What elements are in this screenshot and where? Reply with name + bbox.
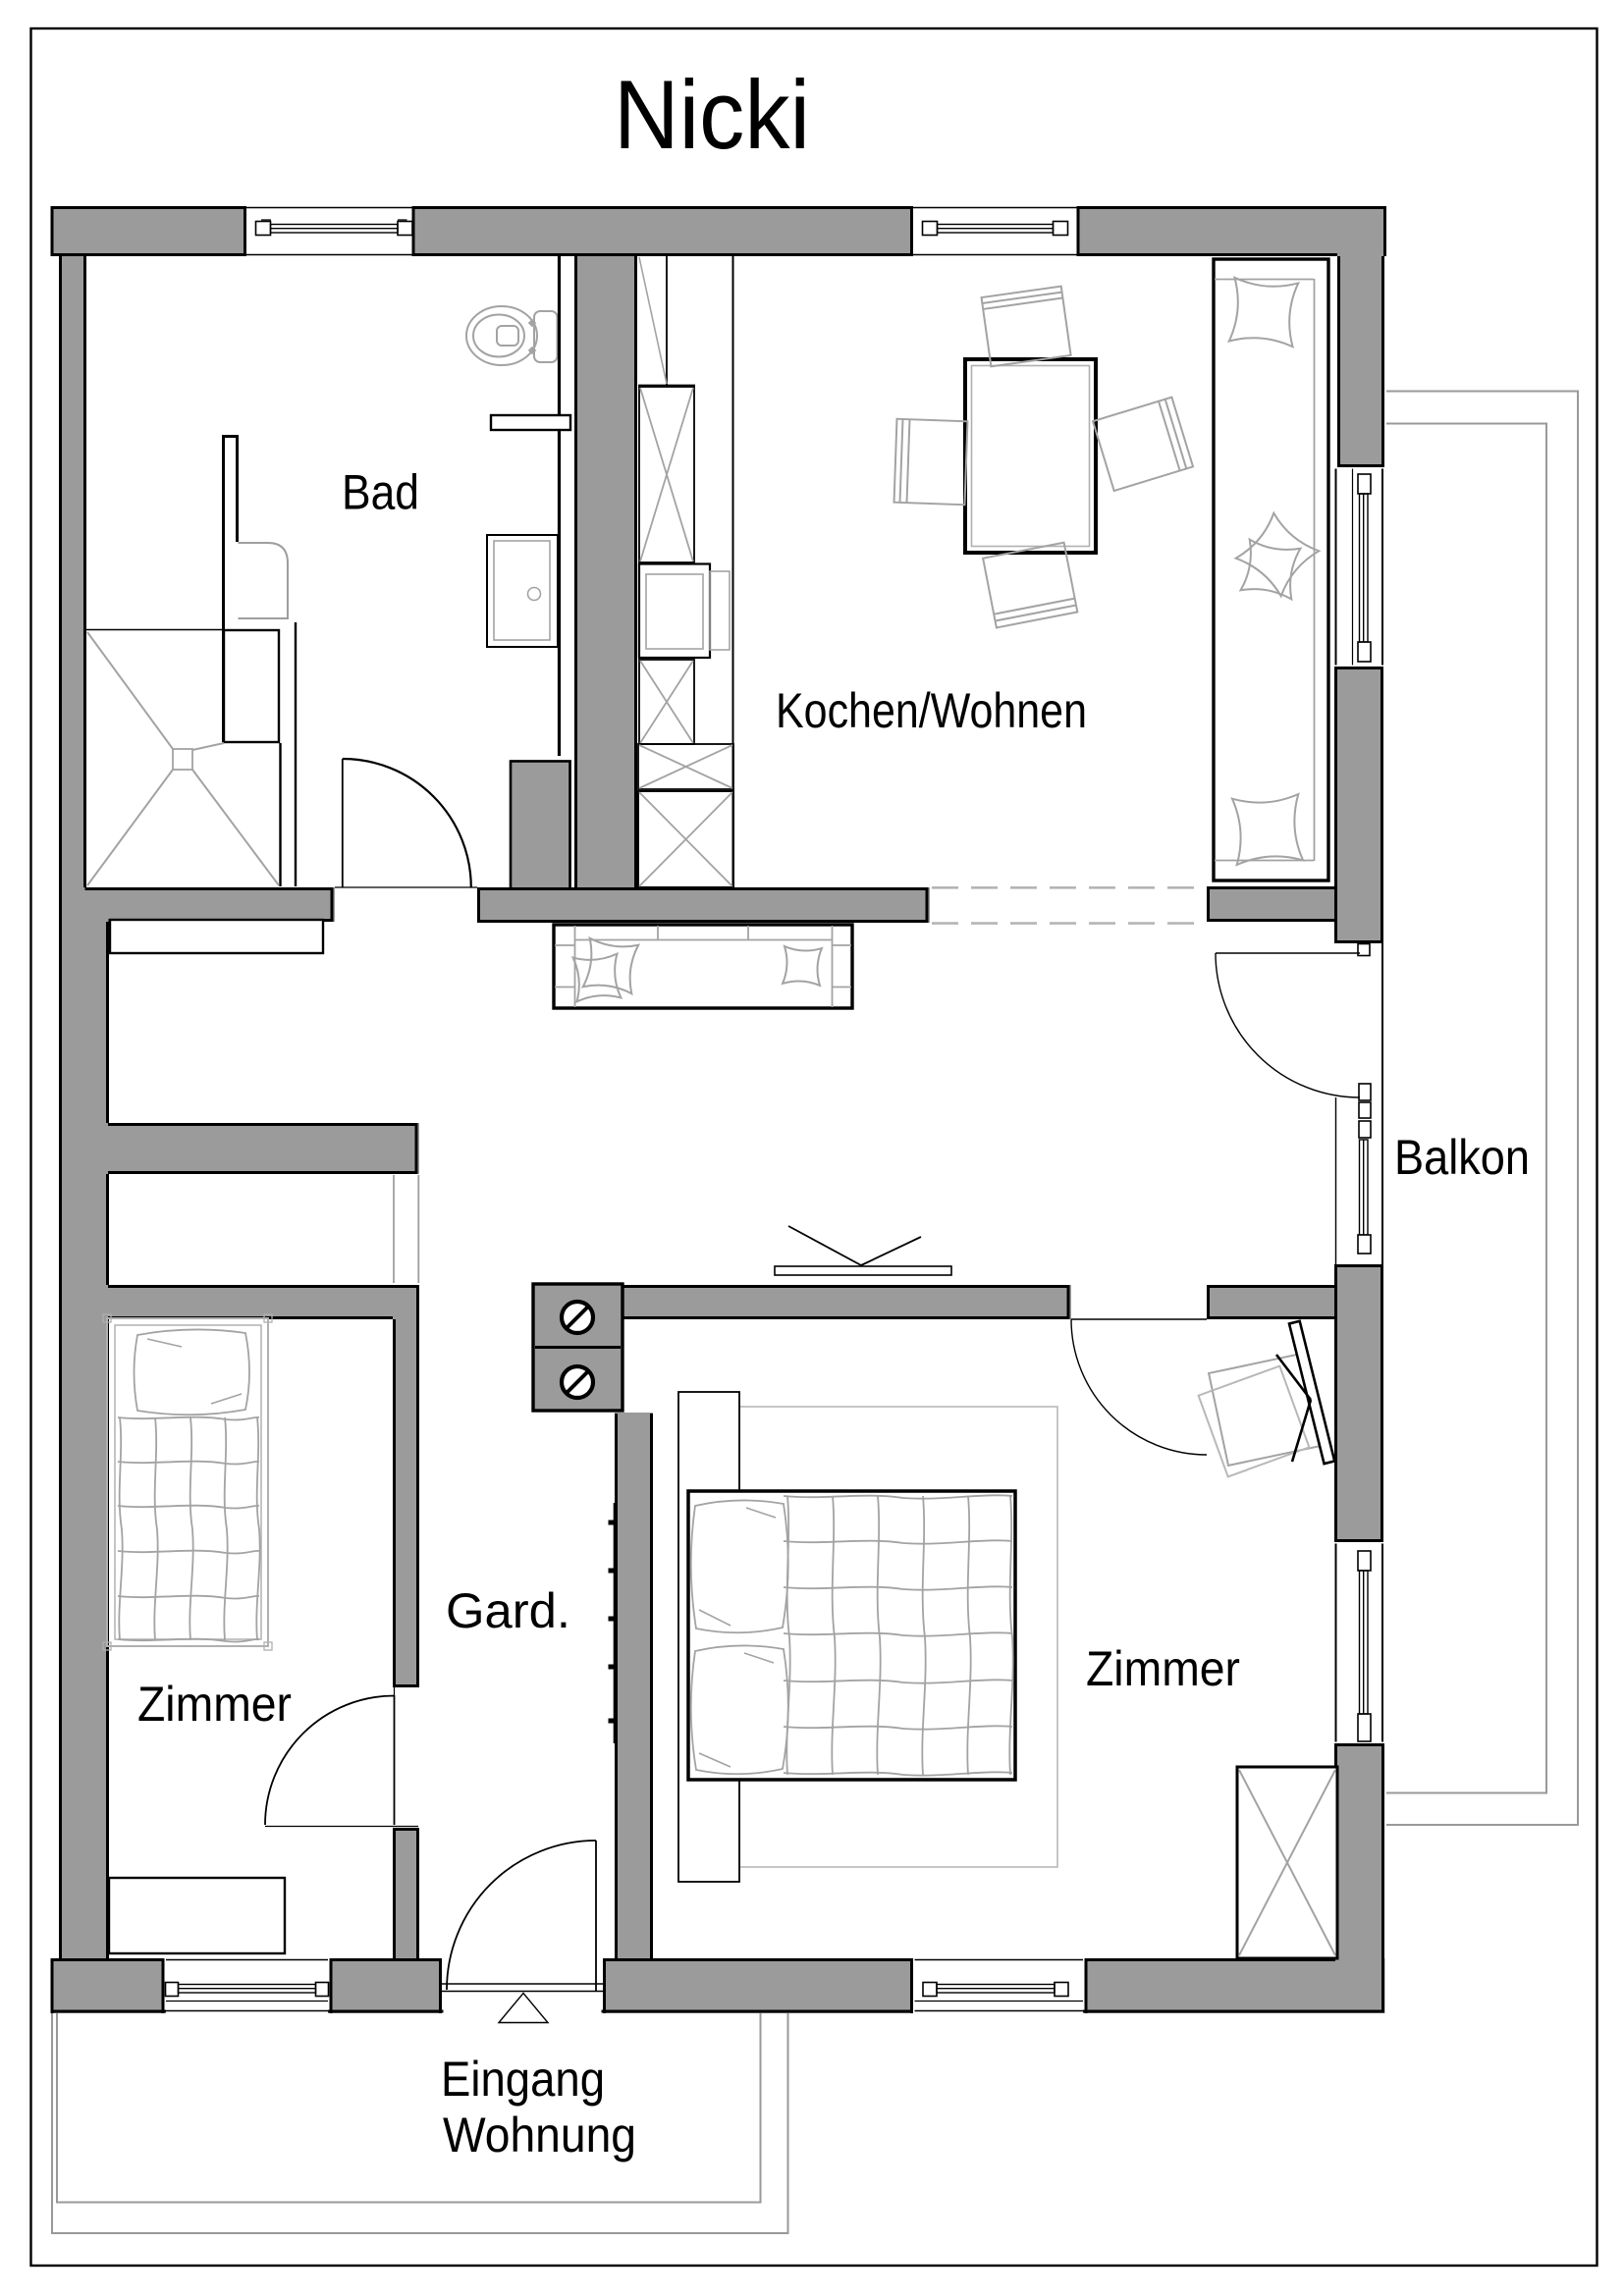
svg-text:Bad: Bad bbox=[342, 465, 419, 520]
svg-text:Zimmer: Zimmer bbox=[1086, 1641, 1240, 1696]
svg-text:Eingang: Eingang bbox=[441, 2052, 605, 2107]
svg-text:Gard.: Gard. bbox=[446, 1583, 570, 1638]
svg-text:Wohnung: Wohnung bbox=[443, 2108, 636, 2163]
svg-text:Nicki: Nicki bbox=[614, 60, 810, 169]
svg-text:Kochen/Wohnen: Kochen/Wohnen bbox=[776, 683, 1087, 738]
svg-text:Zimmer: Zimmer bbox=[137, 1677, 292, 1732]
svg-text:Balkon: Balkon bbox=[1394, 1130, 1530, 1185]
